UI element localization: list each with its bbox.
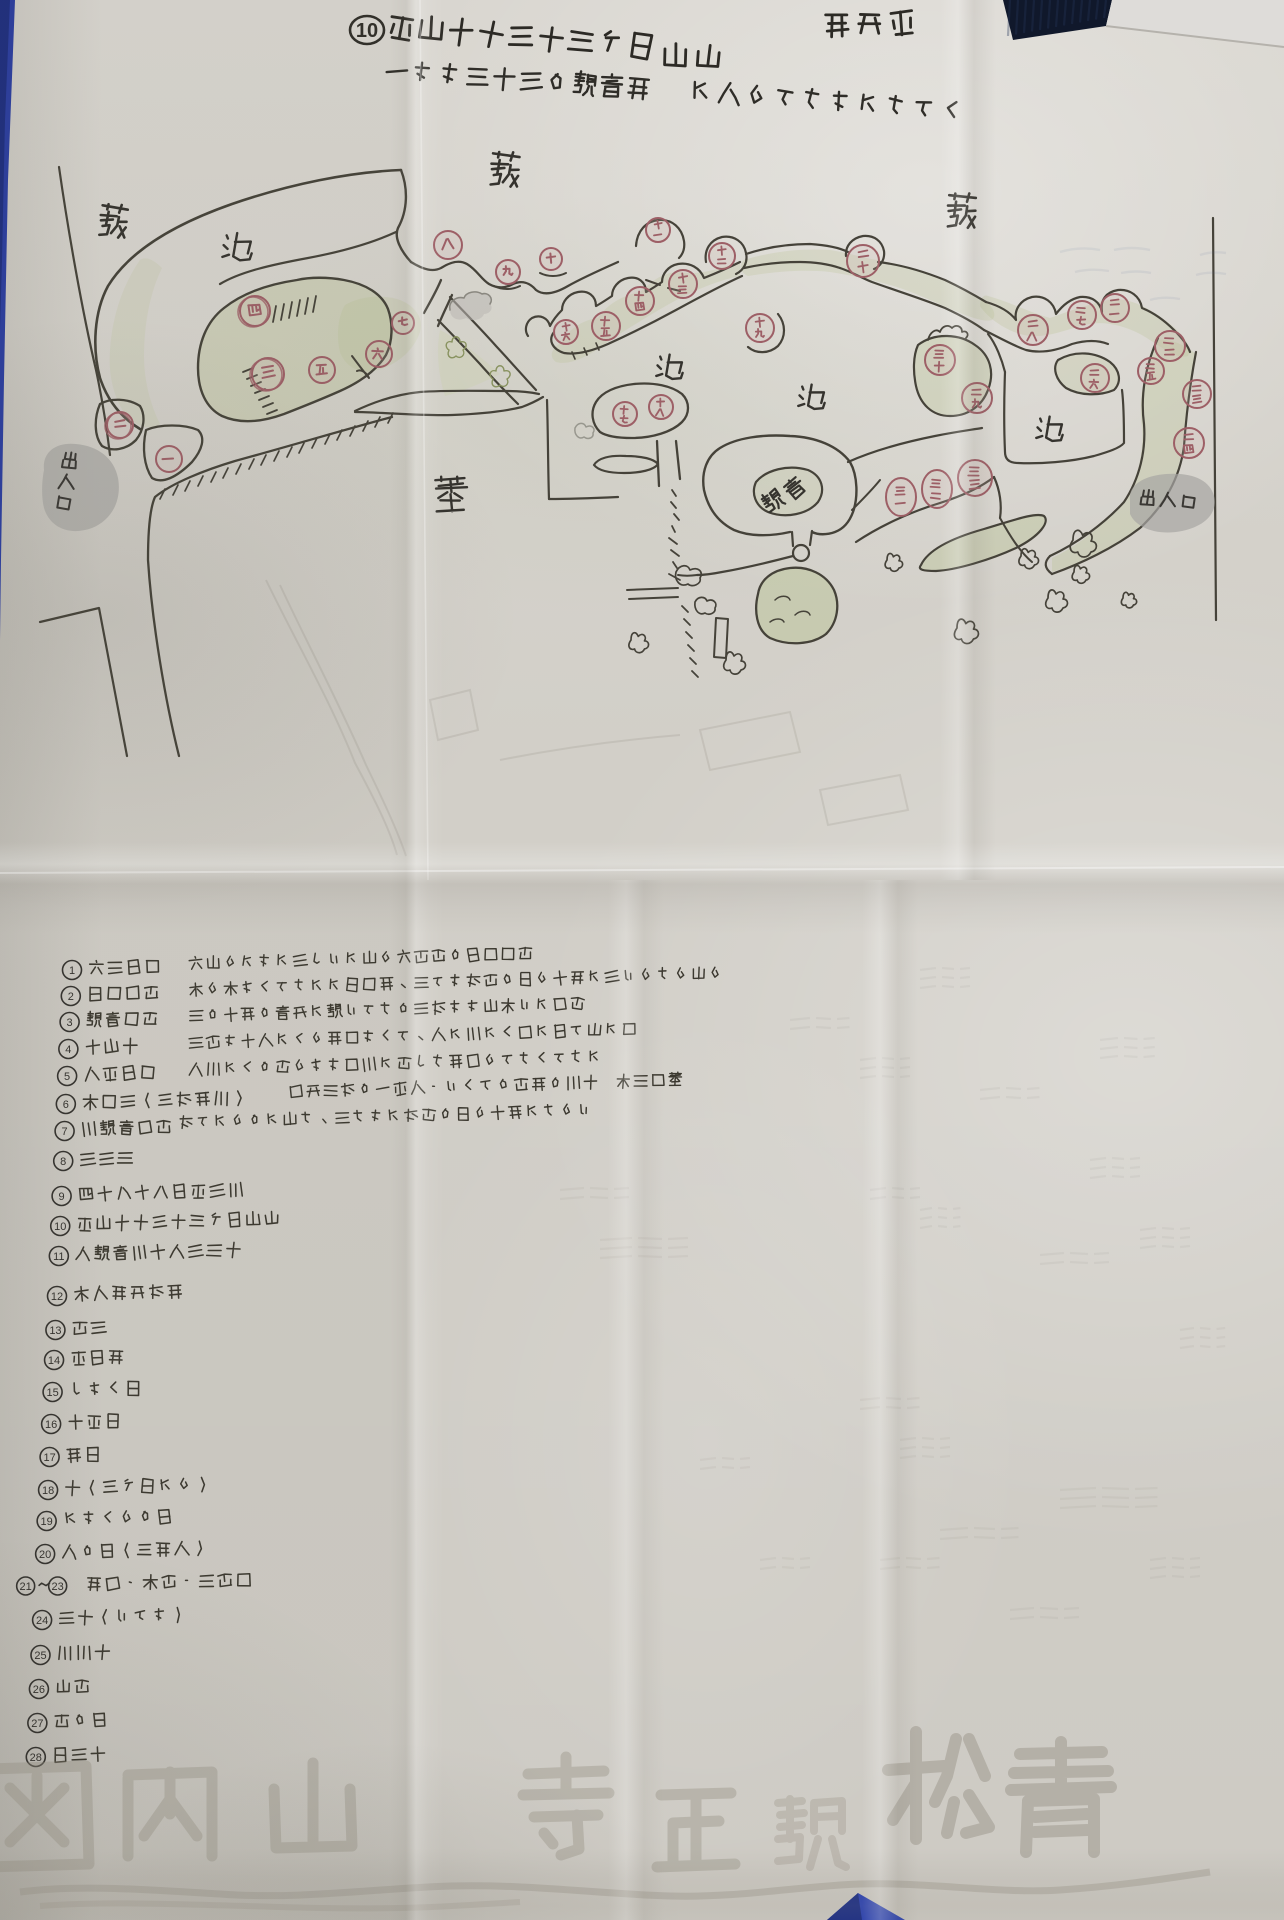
svg-text:13: 13 — [49, 1325, 61, 1337]
svg-text:25: 25 — [34, 1650, 46, 1662]
svg-text:10: 10 — [54, 1221, 66, 1233]
svg-text:20: 20 — [39, 1549, 51, 1561]
svg-text:21: 21 — [20, 1581, 32, 1593]
svg-text:3: 3 — [67, 1017, 73, 1029]
svg-text:5: 5 — [64, 1071, 70, 1083]
svg-text:8: 8 — [60, 1156, 66, 1168]
svg-text:17: 17 — [43, 1452, 55, 1464]
svg-text:16: 16 — [45, 1419, 57, 1431]
svg-text:24: 24 — [36, 1615, 48, 1627]
svg-text:10: 10 — [356, 20, 378, 42]
svg-text:12: 12 — [51, 1291, 63, 1303]
svg-text:6: 6 — [63, 1099, 69, 1111]
svg-text:19: 19 — [41, 1516, 53, 1528]
svg-text:4: 4 — [65, 1044, 71, 1056]
svg-text:9: 9 — [59, 1191, 65, 1203]
svg-text:11: 11 — [53, 1251, 64, 1263]
svg-text:26: 26 — [33, 1684, 45, 1696]
svg-text:7: 7 — [62, 1126, 68, 1138]
svg-text:14: 14 — [48, 1355, 60, 1367]
svg-text:27: 27 — [31, 1718, 43, 1730]
svg-text:28: 28 — [30, 1752, 42, 1764]
svg-text:15: 15 — [46, 1387, 58, 1399]
svg-text:18: 18 — [42, 1485, 54, 1497]
svg-text:23: 23 — [52, 1581, 64, 1593]
svg-text:1: 1 — [69, 965, 75, 977]
svg-text:2: 2 — [68, 991, 74, 1003]
